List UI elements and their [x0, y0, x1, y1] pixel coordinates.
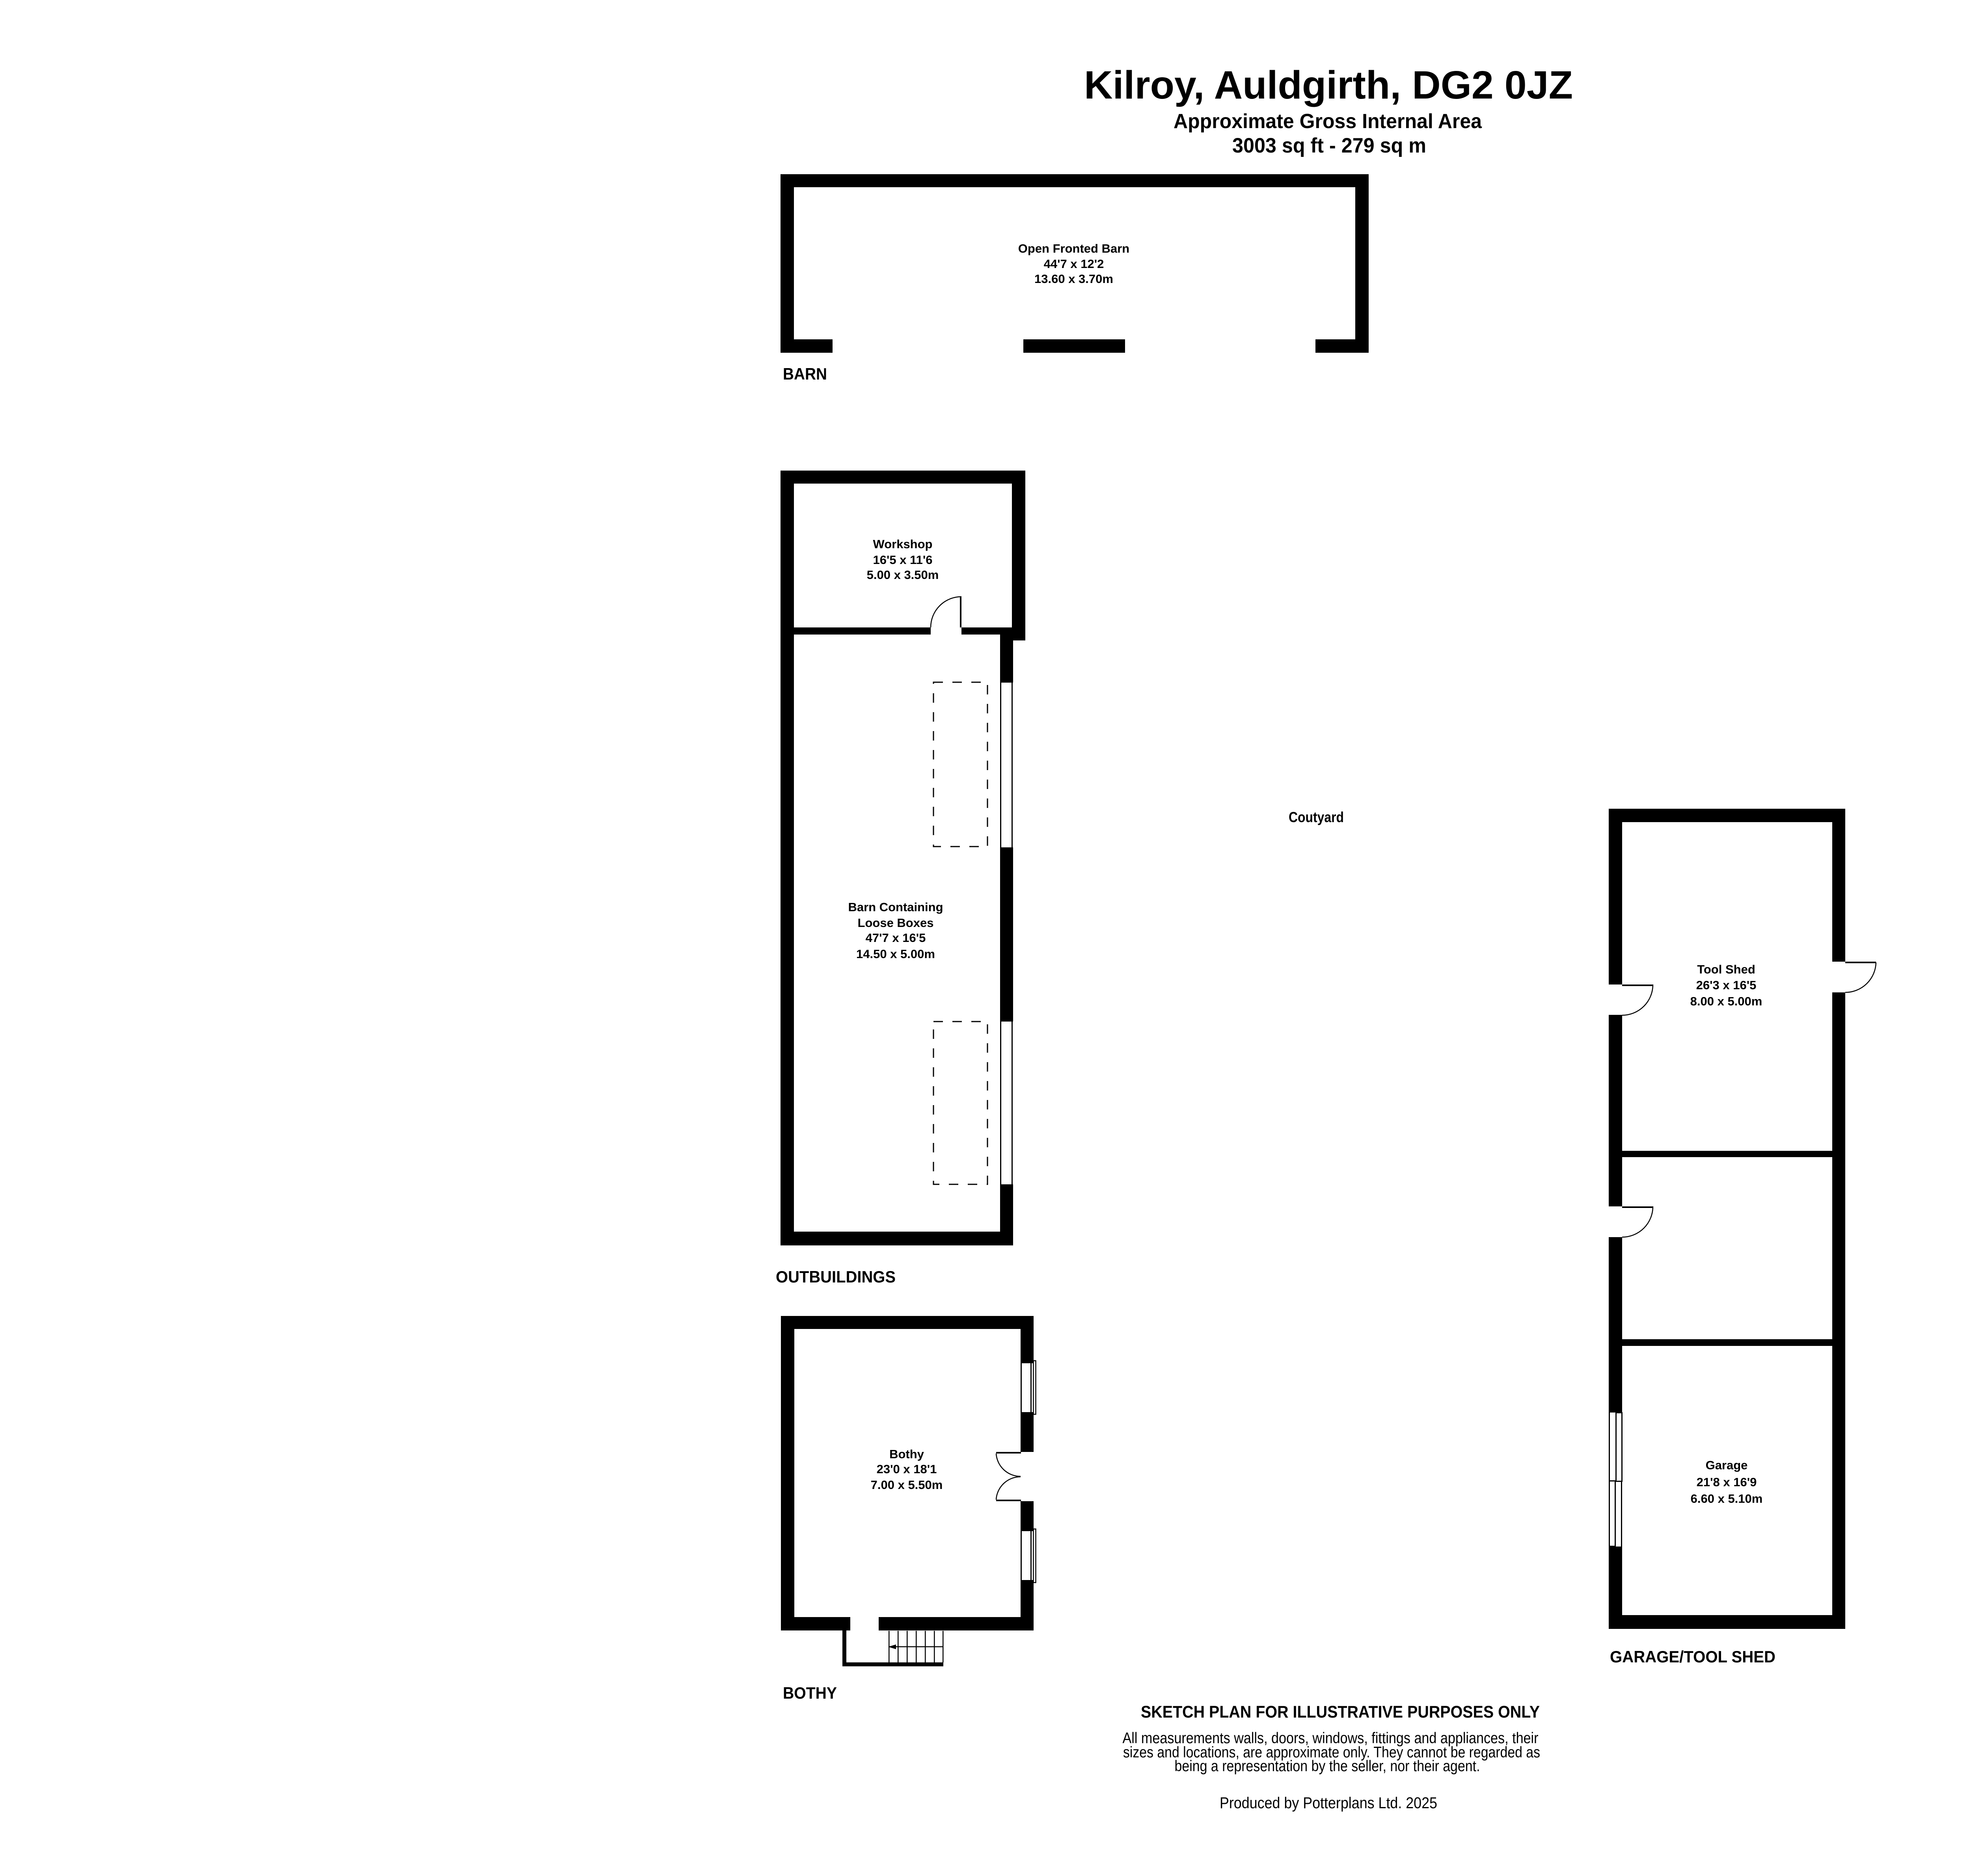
svg-text:Workshop: Workshop: [873, 537, 933, 551]
svg-text:26'3 x 16'5: 26'3 x 16'5: [1696, 978, 1757, 992]
svg-text:Barn Containing: Barn Containing: [848, 900, 943, 914]
svg-text:OUTBUILDINGS: OUTBUILDINGS: [776, 1267, 896, 1286]
svg-text:Kilroy, Auldgirth, DG2 0JZ: Kilroy, Auldgirth, DG2 0JZ: [1084, 63, 1573, 107]
svg-text:BOTHY: BOTHY: [783, 1684, 837, 1702]
svg-text:14.50 x 5.00m: 14.50 x 5.00m: [856, 947, 935, 961]
svg-text:SKETCH PLAN FOR ILLUSTRATIVE P: SKETCH PLAN FOR ILLUSTRATIVE PURPOSES ON…: [1141, 1703, 1540, 1722]
svg-text:Loose Boxes: Loose Boxes: [858, 916, 934, 930]
svg-text:Bothy: Bothy: [889, 1447, 924, 1461]
svg-text:23'0 x 18'1: 23'0 x 18'1: [877, 1462, 937, 1476]
svg-text:being a representation by the: being a representation by the seller, no…: [1175, 1758, 1480, 1775]
svg-text:8.00 x 5.00m: 8.00 x 5.00m: [1690, 994, 1762, 1008]
svg-text:13.60 x 3.70m: 13.60 x 3.70m: [1034, 272, 1113, 286]
svg-text:Tool Shed: Tool Shed: [1697, 962, 1755, 976]
svg-text:7.00 x 5.50m: 7.00 x 5.50m: [871, 1478, 943, 1492]
svg-text:6.60 x 5.10m: 6.60 x 5.10m: [1691, 1492, 1763, 1506]
svg-text:Produced by Potterplans Ltd. 2: Produced by Potterplans Ltd. 2025: [1220, 1794, 1437, 1812]
svg-text:3003 sq ft - 279 sq m: 3003 sq ft - 279 sq m: [1232, 134, 1426, 157]
svg-text:Coutyard: Coutyard: [1289, 809, 1344, 825]
svg-text:GARAGE/TOOL SHED: GARAGE/TOOL SHED: [1610, 1647, 1775, 1666]
svg-text:BARN: BARN: [783, 365, 827, 383]
svg-text:Garage: Garage: [1706, 1458, 1748, 1472]
svg-text:16'5 x 11'6: 16'5 x 11'6: [873, 553, 933, 567]
svg-text:Approximate Gross Internal Are: Approximate Gross Internal Area: [1174, 110, 1482, 133]
svg-text:5.00 x 3.50m: 5.00 x 3.50m: [867, 568, 939, 582]
svg-text:Open Fronted Barn: Open Fronted Barn: [1018, 242, 1129, 255]
svg-text:47'7 x 16'5: 47'7 x 16'5: [866, 931, 926, 945]
svg-text:21'8 x 16'9: 21'8 x 16'9: [1697, 1475, 1757, 1489]
svg-text:44'7 x 12'2: 44'7 x 12'2: [1044, 257, 1104, 271]
